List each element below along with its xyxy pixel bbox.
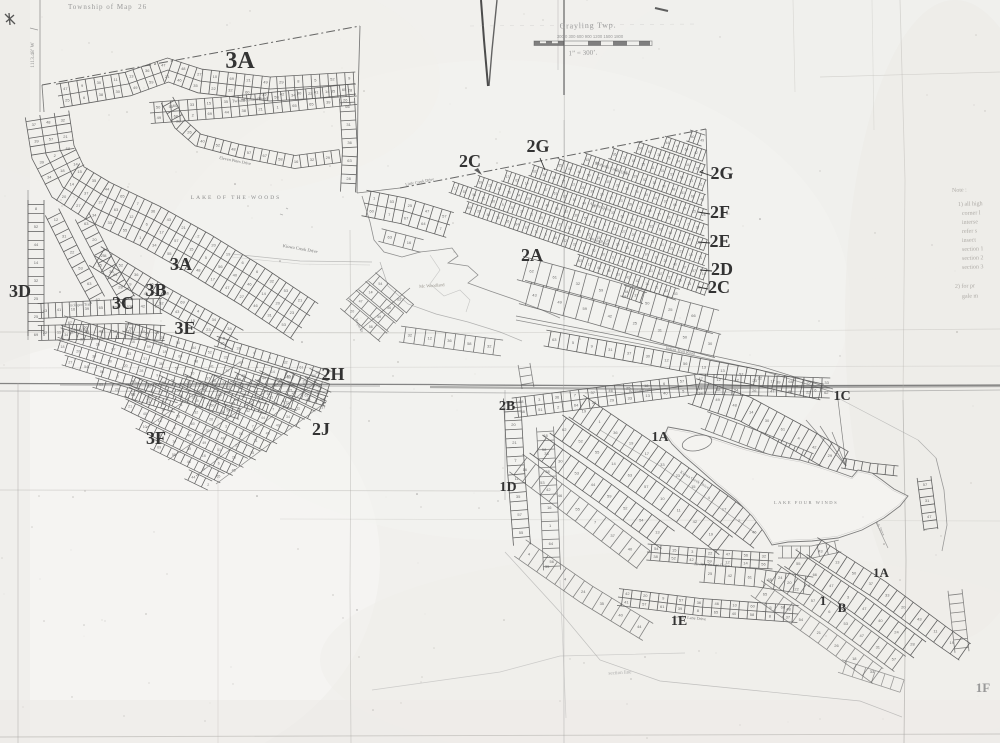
svg-text:33: 33 — [544, 451, 549, 456]
svg-text:44: 44 — [637, 624, 642, 629]
svg-text:40: 40 — [233, 273, 238, 278]
svg-text:15: 15 — [672, 547, 677, 552]
svg-text:20: 20 — [350, 309, 354, 313]
svg-text:66: 66 — [691, 313, 696, 318]
svg-text:18: 18 — [60, 168, 65, 173]
svg-text:56: 56 — [683, 361, 688, 366]
svg-text:17: 17 — [210, 276, 215, 281]
svg-text:59: 59 — [231, 402, 235, 406]
svg-text:53: 53 — [281, 322, 286, 327]
svg-text:60: 60 — [468, 206, 472, 210]
svg-text:1” = 300’.: 1” = 300’. — [568, 48, 597, 57]
svg-text:2E: 2E — [709, 231, 730, 251]
svg-text:69: 69 — [99, 383, 103, 387]
svg-text:22: 22 — [211, 86, 216, 91]
svg-text:11: 11 — [488, 184, 492, 188]
svg-text:7: 7 — [100, 331, 102, 335]
svg-text:52: 52 — [208, 351, 212, 355]
svg-text:38: 38 — [590, 189, 594, 193]
svg-text:2H: 2H — [321, 364, 344, 384]
svg-text:60: 60 — [245, 90, 250, 95]
svg-text:13: 13 — [835, 560, 840, 565]
svg-text:N⁠ote :: N⁠ote : — [952, 187, 967, 194]
svg-text:63: 63 — [515, 178, 519, 182]
svg-text:68: 68 — [781, 604, 786, 609]
svg-text:59: 59 — [539, 216, 543, 220]
svg-text:25: 25 — [692, 210, 696, 214]
svg-text:48: 48 — [196, 267, 201, 272]
svg-text:40: 40 — [673, 262, 677, 266]
svg-text:61: 61 — [748, 575, 753, 580]
svg-text:14: 14 — [743, 561, 748, 566]
svg-text:50: 50 — [683, 334, 688, 339]
svg-text:34: 34 — [64, 333, 68, 337]
svg-text:3: 3 — [225, 425, 227, 429]
svg-text:64: 64 — [549, 541, 554, 546]
svg-text:25: 25 — [633, 320, 638, 325]
svg-text:28: 28 — [346, 176, 351, 181]
svg-text:62: 62 — [563, 195, 567, 199]
svg-text:24: 24 — [581, 589, 586, 594]
svg-text:29: 29 — [279, 80, 284, 85]
svg-text:57: 57 — [739, 372, 744, 377]
svg-text:25: 25 — [408, 203, 413, 208]
svg-text:16: 16 — [202, 454, 206, 458]
svg-text:60: 60 — [84, 326, 88, 330]
svg-text:64: 64 — [574, 402, 579, 407]
svg-text:37: 37 — [627, 350, 632, 355]
svg-text:63: 63 — [127, 352, 131, 356]
svg-text:37: 37 — [562, 179, 566, 183]
svg-text:62: 62 — [96, 297, 101, 302]
svg-text:17: 17 — [722, 506, 727, 511]
svg-text:1E: 1E — [671, 614, 687, 629]
svg-text:52: 52 — [671, 555, 676, 560]
svg-text:32: 32 — [115, 335, 119, 339]
svg-text:33: 33 — [885, 593, 890, 598]
svg-text:12: 12 — [664, 357, 669, 362]
svg-text:3: 3 — [612, 256, 614, 260]
svg-text:30: 30 — [601, 252, 605, 256]
svg-text:25: 25 — [645, 193, 649, 197]
svg-text:31: 31 — [267, 313, 272, 318]
svg-text:23: 23 — [619, 199, 623, 203]
svg-text:14: 14 — [749, 410, 754, 415]
svg-text:62: 62 — [529, 268, 534, 273]
svg-text:19: 19 — [582, 409, 587, 414]
svg-text:21: 21 — [699, 256, 703, 260]
svg-text:42: 42 — [546, 487, 551, 492]
svg-text:50: 50 — [852, 570, 857, 575]
svg-text:55: 55 — [169, 104, 174, 109]
svg-text:57: 57 — [642, 602, 647, 607]
svg-text:2J: 2J — [312, 419, 330, 439]
svg-text:48: 48 — [231, 147, 236, 152]
svg-text:20: 20 — [697, 241, 701, 245]
svg-text:69: 69 — [673, 203, 677, 207]
svg-text:2: 2 — [639, 206, 641, 210]
svg-text:20: 20 — [275, 300, 280, 305]
svg-text:68: 68 — [66, 146, 71, 151]
svg-text:34: 34 — [641, 236, 645, 240]
svg-text:59: 59 — [147, 345, 151, 349]
svg-text:23: 23 — [679, 250, 683, 254]
svg-text:57: 57 — [892, 657, 897, 662]
svg-text:17: 17 — [770, 378, 775, 383]
svg-text:69: 69 — [180, 300, 185, 305]
svg-text:63: 63 — [578, 259, 582, 263]
svg-text:interse: interse — [962, 219, 979, 226]
svg-text:18: 18 — [61, 345, 65, 349]
svg-text:57: 57 — [923, 482, 928, 487]
svg-text:35: 35 — [625, 246, 629, 250]
svg-text:44: 44 — [105, 186, 110, 191]
svg-text:37: 37 — [634, 293, 638, 297]
svg-text:39: 39 — [34, 139, 39, 144]
svg-text:68: 68 — [691, 194, 695, 198]
svg-text:47: 47 — [770, 388, 775, 393]
svg-text:44: 44 — [191, 476, 195, 480]
svg-text:23: 23 — [752, 378, 757, 383]
svg-text:50: 50 — [100, 370, 104, 374]
svg-text:11: 11 — [651, 166, 655, 170]
svg-text:49: 49 — [715, 397, 720, 402]
svg-text:3: 3 — [237, 417, 239, 421]
svg-text:4: 4 — [583, 246, 585, 250]
svg-text:43: 43 — [568, 167, 572, 171]
svg-text:1: 1 — [820, 593, 827, 608]
svg-text:46: 46 — [558, 493, 563, 498]
svg-text:19: 19 — [709, 531, 714, 536]
svg-text:36: 36 — [151, 208, 156, 213]
svg-text:46: 46 — [667, 156, 671, 160]
svg-text:15: 15 — [630, 218, 634, 222]
svg-text:11: 11 — [296, 407, 300, 411]
svg-text:12: 12 — [592, 249, 596, 253]
svg-text:10: 10 — [732, 602, 737, 607]
svg-text:47: 47 — [425, 208, 430, 213]
svg-text:42: 42 — [625, 591, 630, 596]
svg-text:1: 1 — [454, 187, 456, 191]
svg-text:31: 31 — [876, 645, 881, 650]
svg-text:58: 58 — [278, 156, 283, 161]
svg-text:32: 32 — [498, 187, 502, 191]
svg-text:66: 66 — [813, 572, 818, 577]
svg-text:35: 35 — [600, 601, 605, 606]
svg-text:58: 58 — [750, 612, 755, 617]
svg-text:7: 7 — [272, 408, 274, 412]
svg-text:67: 67 — [536, 200, 540, 204]
svg-text:52: 52 — [578, 438, 583, 443]
svg-text:2: 2 — [207, 483, 209, 487]
svg-text:27: 27 — [76, 203, 81, 208]
svg-text:57: 57 — [247, 150, 252, 155]
svg-text:30: 30 — [511, 206, 515, 210]
svg-text:42: 42 — [728, 573, 733, 578]
svg-text:36: 36 — [134, 272, 139, 277]
svg-text:69: 69 — [229, 76, 234, 81]
svg-text:57: 57 — [692, 269, 696, 273]
svg-text:32: 32 — [762, 554, 767, 559]
svg-text:21: 21 — [165, 74, 170, 79]
svg-text:46: 46 — [608, 388, 613, 393]
svg-text:41: 41 — [624, 600, 629, 605]
svg-text:38: 38 — [696, 226, 700, 230]
svg-text:24: 24 — [688, 282, 692, 286]
svg-text:65: 65 — [216, 475, 220, 479]
svg-text:50: 50 — [108, 359, 112, 363]
svg-text:69: 69 — [207, 111, 212, 116]
svg-text:50: 50 — [645, 301, 650, 306]
svg-text:23: 23 — [206, 327, 211, 332]
svg-text:34: 34 — [47, 175, 52, 180]
svg-text:36: 36 — [159, 362, 163, 366]
svg-text:65: 65 — [506, 219, 510, 223]
svg-text:56: 56 — [554, 236, 558, 240]
svg-text:42: 42 — [563, 239, 567, 243]
svg-text:61: 61 — [660, 604, 665, 609]
svg-text:17: 17 — [645, 451, 650, 456]
svg-text:47: 47 — [859, 633, 864, 638]
svg-text:section 2: section 2 — [962, 255, 984, 262]
svg-text:30: 30 — [765, 418, 770, 423]
svg-text:32: 32 — [269, 279, 274, 284]
svg-text:21: 21 — [246, 78, 251, 83]
svg-text:34: 34 — [212, 317, 217, 322]
svg-text:65: 65 — [99, 305, 104, 310]
svg-text:1) all high: 1) all high — [958, 200, 983, 208]
svg-text:21: 21 — [817, 630, 822, 635]
svg-text:20: 20 — [787, 580, 792, 585]
svg-text:6: 6 — [218, 461, 220, 465]
svg-text:60: 60 — [191, 422, 195, 426]
svg-text:49: 49 — [557, 299, 562, 304]
svg-text:65: 65 — [292, 103, 297, 108]
svg-text:30: 30 — [646, 354, 651, 359]
svg-text:53: 53 — [284, 288, 289, 293]
svg-text:26: 26 — [752, 388, 757, 393]
svg-text:26: 26 — [834, 643, 839, 648]
svg-text:47: 47 — [927, 514, 932, 519]
svg-text:61: 61 — [146, 400, 150, 404]
svg-text:24: 24 — [683, 206, 687, 210]
svg-text:40: 40 — [663, 391, 668, 396]
svg-text:56: 56 — [744, 553, 749, 558]
svg-text:37: 37 — [520, 210, 524, 214]
svg-text:38: 38 — [241, 108, 246, 113]
svg-text:53: 53 — [574, 470, 579, 475]
svg-text:50: 50 — [156, 104, 161, 109]
svg-text:20: 20 — [211, 242, 216, 247]
svg-text:32: 32 — [228, 88, 233, 93]
svg-text:63: 63 — [552, 337, 557, 342]
svg-text:32: 32 — [194, 410, 198, 414]
svg-text:61: 61 — [482, 196, 486, 200]
svg-text:10: 10 — [213, 74, 218, 79]
svg-text:3F: 3F — [146, 428, 166, 448]
svg-text:2G: 2G — [526, 136, 549, 156]
svg-text:43: 43 — [917, 616, 922, 621]
svg-text:59: 59 — [607, 494, 612, 499]
svg-text:43: 43 — [532, 293, 537, 298]
svg-text:53: 53 — [617, 272, 621, 276]
svg-text:16: 16 — [507, 190, 511, 194]
svg-text:37: 37 — [683, 266, 687, 270]
svg-text:49: 49 — [157, 115, 162, 120]
svg-text:32: 32 — [487, 344, 492, 349]
svg-text:13: 13 — [645, 393, 650, 398]
svg-text:25: 25 — [708, 571, 713, 576]
svg-text:12: 12 — [588, 263, 592, 267]
svg-text:L⁠AKE OF THE WOODS: L⁠AKE OF THE WOODS — [191, 195, 281, 201]
svg-text:65: 65 — [788, 389, 793, 394]
svg-text:56: 56 — [312, 374, 316, 378]
svg-text:34: 34 — [677, 160, 681, 164]
svg-text:22: 22 — [794, 586, 799, 591]
svg-text:44: 44 — [34, 242, 39, 247]
svg-text:53: 53 — [670, 172, 674, 176]
svg-text:44: 44 — [261, 416, 265, 420]
svg-text:insect: insect — [962, 238, 977, 244]
svg-text:34: 34 — [286, 415, 290, 419]
svg-text:20: 20 — [688, 238, 692, 242]
svg-text:37: 37 — [869, 581, 874, 586]
svg-text:65: 65 — [763, 592, 768, 597]
svg-text:61: 61 — [681, 191, 685, 195]
svg-text:50: 50 — [176, 341, 180, 345]
svg-text:29: 29 — [526, 197, 530, 201]
svg-text:10: 10 — [645, 252, 649, 256]
svg-text:6: 6 — [677, 219, 679, 223]
svg-text:24: 24 — [256, 401, 260, 405]
svg-text:58: 58 — [467, 341, 472, 346]
svg-text:54: 54 — [378, 282, 382, 286]
svg-text:4: 4 — [174, 426, 176, 430]
svg-text:37: 37 — [610, 533, 615, 538]
svg-text:40: 40 — [187, 434, 191, 438]
svg-text:36: 36 — [697, 600, 702, 605]
svg-text:39: 39 — [678, 606, 683, 611]
svg-text:34: 34 — [92, 213, 97, 218]
svg-text:6: 6 — [269, 356, 271, 360]
svg-text:58: 58 — [472, 193, 476, 197]
svg-text:36: 36 — [96, 343, 100, 347]
svg-text:29: 29 — [633, 175, 637, 179]
svg-text:23: 23 — [640, 266, 644, 270]
svg-text:47: 47 — [726, 552, 731, 557]
svg-text:60: 60 — [306, 398, 310, 402]
svg-text:69: 69 — [34, 332, 39, 337]
svg-text:54: 54 — [639, 517, 644, 522]
svg-text:corner l: corner l — [962, 210, 981, 217]
svg-text:9: 9 — [156, 374, 158, 378]
svg-text:55: 55 — [519, 530, 524, 535]
svg-text:26: 26 — [232, 455, 236, 459]
svg-text:T⁠ownship of Map 26: T⁠ownship of Map 26 — [68, 3, 147, 11]
svg-text:17: 17 — [657, 212, 661, 216]
svg-text:63: 63 — [347, 158, 352, 163]
svg-text:48: 48 — [732, 403, 737, 408]
svg-text:32: 32 — [310, 157, 315, 162]
svg-text:69: 69 — [648, 209, 652, 213]
svg-text:53: 53 — [540, 480, 545, 485]
svg-text:35: 35 — [193, 83, 198, 88]
svg-text:61: 61 — [649, 269, 653, 273]
svg-text:36: 36 — [162, 381, 166, 385]
svg-text:19: 19 — [236, 346, 240, 350]
svg-text:32: 32 — [80, 338, 84, 342]
svg-text:27: 27 — [622, 230, 626, 234]
svg-text:47: 47 — [161, 63, 166, 68]
svg-text:43: 43 — [664, 289, 668, 293]
svg-text:L⁠AKE FOUR WINDS: L⁠AKE FOUR WINDS — [774, 500, 838, 505]
svg-text:62: 62 — [621, 215, 625, 219]
svg-text:20: 20 — [901, 605, 906, 610]
svg-text:37: 37 — [32, 122, 37, 127]
svg-text:44: 44 — [262, 377, 266, 381]
svg-text:11: 11 — [535, 229, 539, 233]
svg-text:69: 69 — [237, 378, 241, 382]
svg-text:13: 13 — [129, 74, 134, 79]
svg-text:44: 44 — [666, 141, 670, 145]
svg-text:6: 6 — [166, 396, 168, 400]
svg-text:18: 18 — [227, 386, 231, 390]
svg-text:44: 44 — [591, 482, 596, 487]
svg-text:65: 65 — [342, 87, 347, 92]
svg-text:67: 67 — [68, 321, 72, 325]
svg-text:34: 34 — [568, 226, 572, 230]
svg-text:28: 28 — [910, 642, 915, 647]
svg-text:26: 26 — [209, 418, 213, 422]
svg-text:42: 42 — [141, 304, 146, 309]
svg-text:29: 29 — [610, 398, 615, 403]
svg-text:36: 36 — [347, 140, 352, 145]
svg-text:section 1: section 1 — [962, 246, 984, 253]
svg-text:52: 52 — [34, 224, 39, 229]
svg-text:9: 9 — [641, 221, 643, 225]
svg-text:section 3: section 3 — [962, 264, 984, 271]
svg-text:27: 27 — [197, 72, 202, 77]
svg-text:26: 26 — [187, 130, 192, 135]
svg-text:4: 4 — [303, 383, 305, 387]
svg-text:67: 67 — [632, 159, 636, 163]
svg-text:68: 68 — [788, 379, 793, 384]
svg-text:3D: 3D — [9, 281, 31, 301]
svg-text:4: 4 — [253, 385, 255, 389]
svg-text:23: 23 — [290, 310, 295, 315]
svg-text:21: 21 — [512, 440, 517, 445]
svg-text:30: 30 — [97, 80, 102, 85]
svg-text:3A: 3A — [225, 48, 255, 74]
svg-text:7: 7 — [252, 425, 254, 429]
svg-text:41: 41 — [654, 196, 658, 200]
svg-text:25: 25 — [642, 163, 646, 167]
svg-text:52: 52 — [487, 213, 491, 217]
svg-text:67: 67 — [404, 216, 409, 221]
svg-text:39: 39 — [574, 213, 578, 217]
svg-text:1F: 1F — [976, 680, 991, 695]
svg-text:7: 7 — [687, 222, 689, 226]
svg-text:56: 56 — [369, 325, 373, 329]
svg-text:14: 14 — [611, 461, 616, 466]
svg-text:B: B — [838, 600, 847, 615]
svg-text:2) for pr: 2) for pr — [955, 282, 975, 290]
svg-text:63: 63 — [84, 221, 89, 226]
svg-text:66: 66 — [345, 104, 350, 109]
svg-text:64: 64 — [515, 223, 519, 227]
svg-text:7: 7 — [679, 234, 681, 238]
svg-text:21: 21 — [655, 286, 659, 290]
